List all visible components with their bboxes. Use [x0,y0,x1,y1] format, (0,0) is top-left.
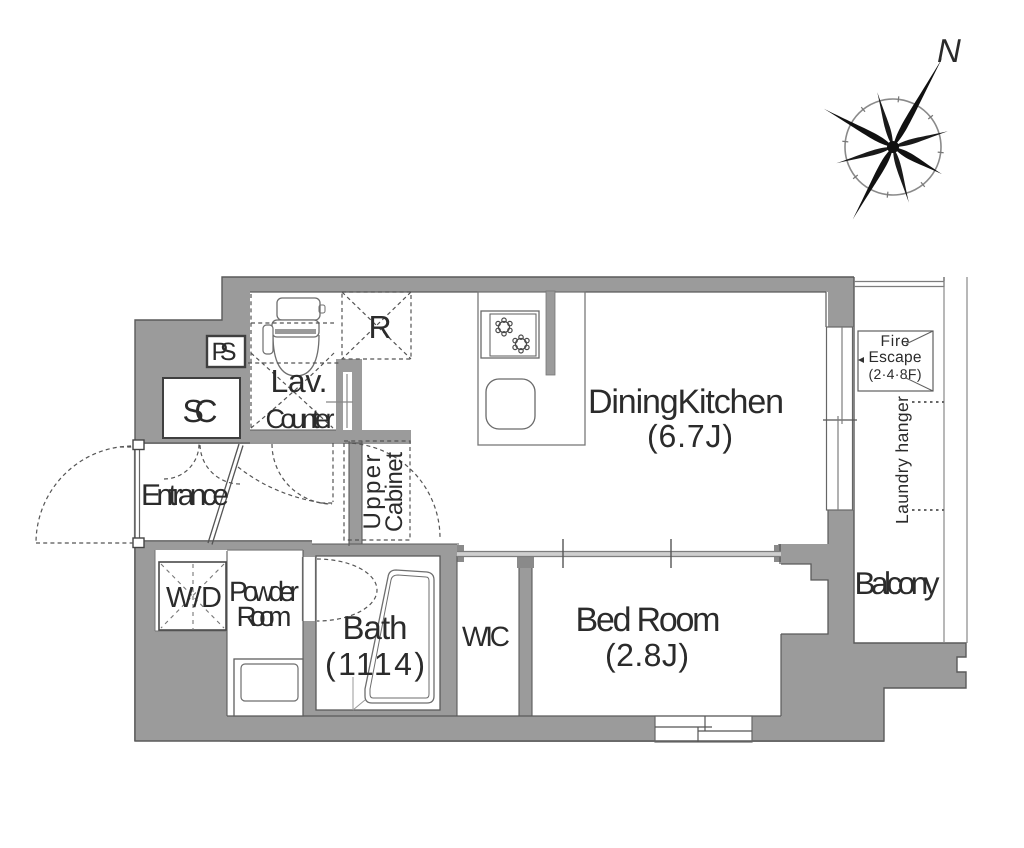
svg-text:Laundry hanger: Laundry hanger [892,396,912,524]
svg-text:(6.7J): (6.7J) [647,418,733,454]
svg-text:Bed Room: Bed Room [576,601,721,639]
svg-text:WIC: WIC [462,621,510,652]
svg-text:PS: PS [212,338,237,366]
svg-text:Room: Room [237,601,292,632]
svg-text:W/D: W/D [166,582,222,614]
svg-text:(1114): (1114) [325,646,425,682]
svg-text:(2.8J): (2.8J) [605,637,689,673]
svg-text:Entrance: Entrance [141,479,229,512]
svg-text:SC: SC [183,393,218,429]
svg-text:Counter: Counter [266,404,335,434]
svg-text:Bath: Bath [343,609,408,646]
svg-text:Cabinet: Cabinet [381,452,408,532]
svg-text:(2·4·8F): (2·4·8F) [869,366,922,382]
svg-text:Lav.: Lav. [271,363,328,399]
svg-text:DiningKitchen: DiningKitchen [588,383,784,421]
svg-text:R: R [368,309,391,345]
svg-text:Escape: Escape [869,349,922,366]
svg-text:N: N [937,32,961,69]
svg-text:Balcony: Balcony [855,565,940,601]
svg-text:Fire: Fire [881,333,910,350]
